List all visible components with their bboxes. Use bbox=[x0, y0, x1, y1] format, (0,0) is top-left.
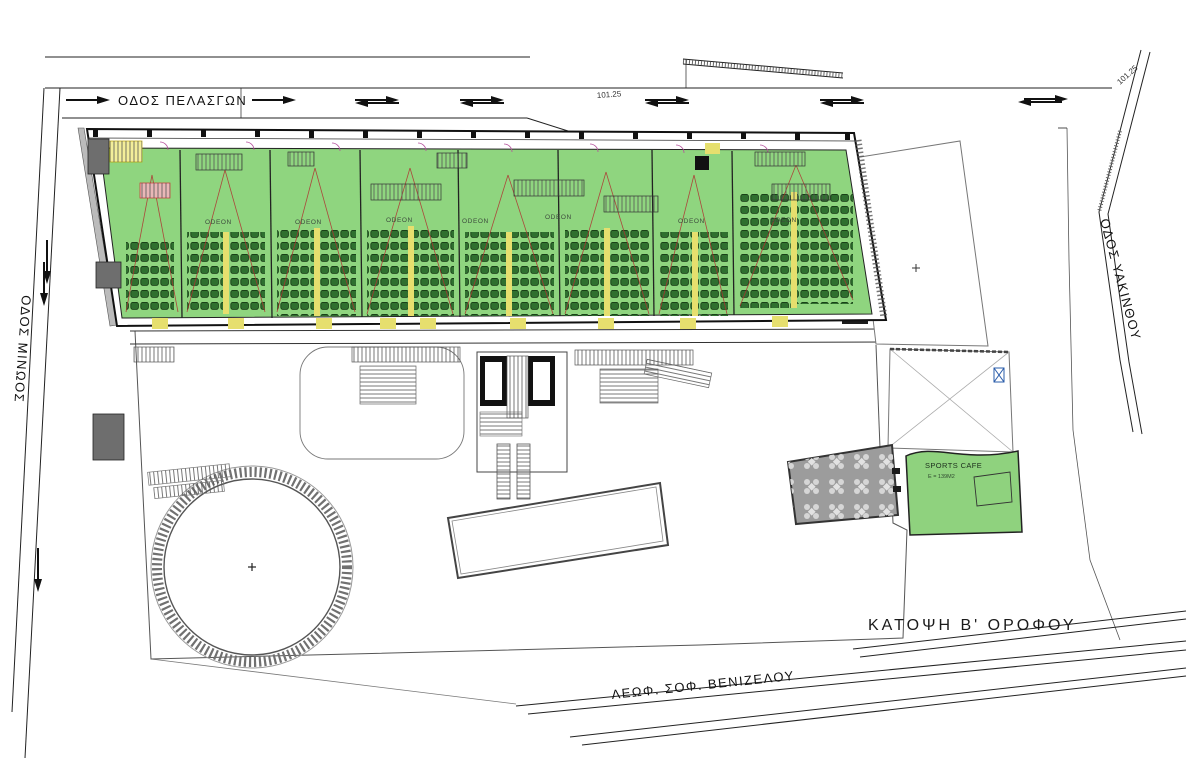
hall-label: ODEON bbox=[386, 217, 413, 224]
escalator bbox=[517, 444, 530, 499]
seat-bank bbox=[465, 232, 506, 316]
seat-bank bbox=[698, 232, 728, 316]
sports-cafe: SPORTS CAFE E = 139M2 bbox=[906, 451, 1022, 535]
circular-structure bbox=[148, 464, 353, 668]
street-label-right: ΟΔΟΣ ΥΑΚΙΝΘΟΥ bbox=[1097, 217, 1144, 342]
hall-label: ODEON bbox=[678, 218, 705, 225]
seat-bank bbox=[367, 226, 408, 316]
floor-plan-drawing: SPORTS CAFE E = 139M2 bbox=[0, 0, 1187, 768]
hall-label: ODEON bbox=[545, 214, 572, 221]
floor-plan-canvas: SPORTS CAFE E = 139M2 bbox=[0, 0, 1187, 768]
seat-bank bbox=[565, 228, 604, 316]
seat-bank bbox=[414, 226, 454, 316]
dimension-top-right: 101.25 bbox=[1115, 63, 1140, 86]
elevator-core bbox=[477, 352, 567, 499]
seat-bank bbox=[797, 192, 853, 304]
seat-bank bbox=[610, 228, 649, 316]
hall-label: ODEON bbox=[295, 219, 322, 226]
terrace bbox=[788, 445, 901, 524]
seat-bank bbox=[740, 192, 791, 308]
cafe-name-label: SPORTS CAFE bbox=[925, 461, 982, 470]
escalator bbox=[497, 444, 510, 499]
seat-bank bbox=[320, 228, 356, 316]
hall-label: ODEON bbox=[205, 219, 232, 226]
cafe-area-label: E = 139M2 bbox=[928, 474, 955, 480]
right-stair-cluster bbox=[575, 350, 712, 403]
void-opening bbox=[888, 349, 1013, 452]
seat-bank bbox=[659, 232, 692, 316]
left-stair-cluster bbox=[352, 347, 460, 404]
core-stair bbox=[507, 356, 528, 418]
structural-core-lower bbox=[93, 414, 124, 460]
plan-caption: ΚΑΤΟΨΗ Β' ΟΡΟΦΟΥ bbox=[868, 617, 1077, 634]
cinema-block bbox=[78, 128, 886, 329]
seat-bank bbox=[512, 232, 554, 316]
hall-label: ODEON bbox=[462, 218, 489, 225]
street-label-left: ΟΔΟΣ ΜΙΝΩΟΣ bbox=[11, 295, 34, 404]
dimension-top-center: 101.25 bbox=[597, 89, 623, 100]
hall-label: ODEON bbox=[770, 217, 797, 224]
seat-bank bbox=[229, 232, 265, 314]
street-label-top: ΟΔΟΣ ΠΕΛΑΣΓΩΝ bbox=[118, 93, 247, 108]
